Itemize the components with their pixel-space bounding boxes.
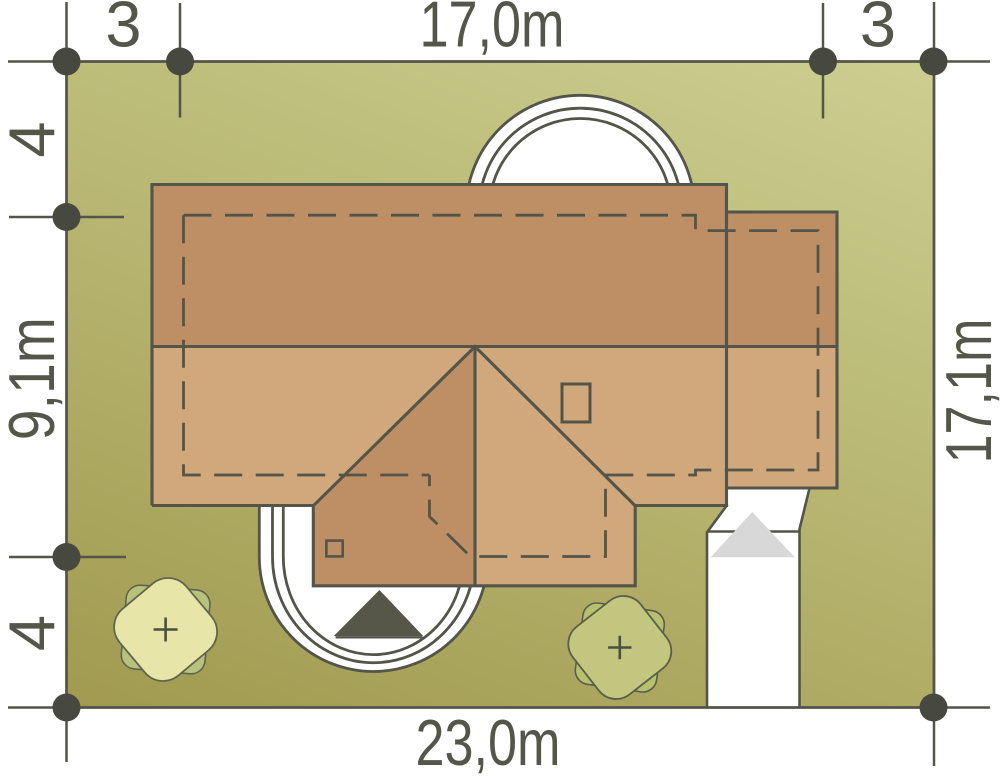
svg-text:4: 4 bbox=[0, 615, 68, 651]
svg-text:3: 3 bbox=[860, 0, 896, 61]
svg-text:4: 4 bbox=[0, 121, 68, 157]
svg-text:3: 3 bbox=[105, 0, 141, 61]
svg-text:17,1m: 17,1m bbox=[932, 319, 1000, 464]
svg-text:23,0m: 23,0m bbox=[416, 706, 561, 776]
svg-text:9,1m: 9,1m bbox=[0, 317, 68, 440]
svg-text:17,0m: 17,0m bbox=[420, 0, 565, 61]
